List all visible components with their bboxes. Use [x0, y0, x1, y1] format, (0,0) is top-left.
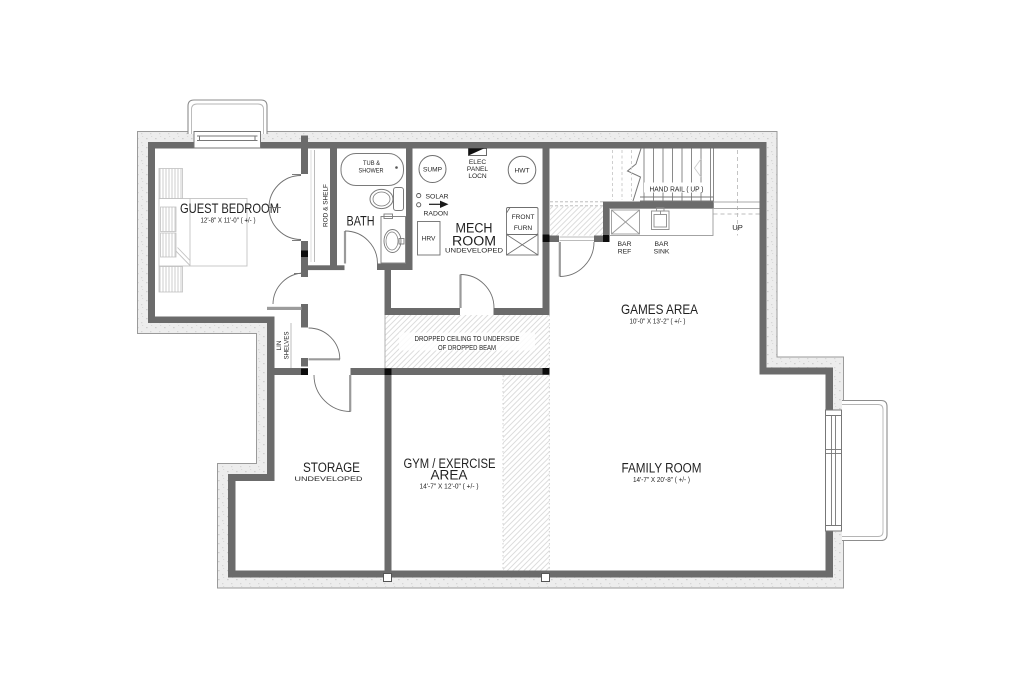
svg-text:GAMES AREA: GAMES AREA — [621, 301, 699, 317]
svg-text:DROPPED CEILING TO UNDERSIDE: DROPPED CEILING TO UNDERSIDE — [415, 334, 520, 343]
svg-text:SHELVES: SHELVES — [284, 331, 291, 359]
svg-text:FURN: FURN — [514, 225, 533, 232]
svg-text:HWT: HWT — [514, 168, 529, 175]
svg-text:RADON: RADON — [424, 211, 449, 218]
svg-text:UNDEVELOPED: UNDEVELOPED — [445, 248, 503, 255]
svg-text:TUB &: TUB & — [363, 160, 381, 167]
svg-text:BAR: BAR — [655, 241, 669, 248]
svg-text:AREA: AREA — [431, 468, 468, 483]
svg-text:12'-8" X 11'-0" ( +/- ): 12'-8" X 11'-0" ( +/- ) — [201, 216, 256, 225]
svg-text:LIN: LIN — [276, 341, 283, 351]
svg-text:GUEST BEDROOM: GUEST BEDROOM — [180, 200, 279, 216]
svg-text:14'-7" X 20'-8" ( +/- ): 14'-7" X 20'-8" ( +/- ) — [633, 475, 690, 484]
svg-text:HAND RAIL ( UP ): HAND RAIL ( UP ) — [650, 185, 704, 194]
svg-text:OF DROPPED BEAM: OF DROPPED BEAM — [438, 343, 496, 352]
svg-text:SUMP: SUMP — [423, 167, 443, 174]
svg-text:FAMILY ROOM: FAMILY ROOM — [622, 461, 702, 476]
svg-text:ROD & SHELF: ROD & SHELF — [323, 184, 330, 227]
svg-text:UP: UP — [732, 223, 743, 232]
svg-text:14'-7" X 12'-0" ( +/- ): 14'-7" X 12'-0" ( +/- ) — [420, 482, 479, 491]
svg-text:ELEC: ELEC — [469, 159, 486, 166]
svg-text:10'-0" X 13'-2" ( +/- ): 10'-0" X 13'-2" ( +/- ) — [630, 317, 686, 326]
svg-text:SHOWER: SHOWER — [359, 168, 384, 175]
svg-text:STORAGE: STORAGE — [303, 460, 360, 475]
svg-text:HRV: HRV — [422, 236, 436, 243]
svg-text:BAR: BAR — [618, 241, 632, 248]
svg-text:PANEL: PANEL — [467, 166, 488, 173]
svg-text:LOCN: LOCN — [468, 173, 487, 180]
svg-text:ROOM: ROOM — [452, 234, 496, 249]
svg-text:SOLAR: SOLAR — [426, 193, 449, 200]
svg-text:BATH: BATH — [347, 214, 375, 229]
svg-text:FRONT: FRONT — [512, 214, 535, 221]
svg-text:SINK: SINK — [654, 249, 670, 256]
svg-text:REF: REF — [618, 249, 632, 256]
svg-text:UNDEVELOPED: UNDEVELOPED — [295, 476, 363, 483]
